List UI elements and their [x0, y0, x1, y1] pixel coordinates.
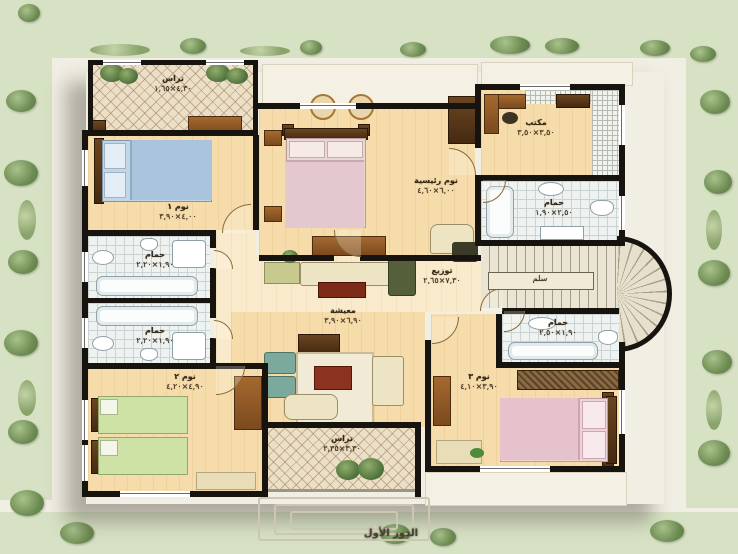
tree-icon	[698, 440, 730, 466]
sink	[92, 336, 114, 351]
room-dims: ١,٩٠×٢,٢٠	[118, 260, 192, 270]
window	[82, 150, 88, 186]
room-label-bedroom3: نوم ٣ ٣,٩٠×٤,١٠	[442, 372, 516, 393]
office-terrace-tile	[592, 90, 619, 175]
room-name: حمام	[518, 198, 590, 208]
wall-segment	[262, 422, 421, 428]
toilet	[598, 330, 618, 345]
coffee-table	[318, 282, 366, 298]
plant-icon	[226, 68, 248, 84]
tree-icon	[18, 4, 40, 22]
tv-cabinet	[298, 334, 340, 354]
window	[619, 390, 625, 434]
tree-icon	[4, 330, 38, 356]
wall-segment	[475, 240, 625, 246]
vanity	[540, 226, 584, 240]
room-label-master: نوم رئيسية ٦,٠٠×٤,٦٠	[392, 176, 480, 197]
floor-caption: الدور الأول	[336, 528, 446, 539]
wall-segment	[210, 338, 216, 363]
room-name: مكتب	[498, 118, 574, 128]
window	[520, 84, 570, 90]
bed-blanket	[286, 160, 364, 228]
sofa	[372, 356, 404, 406]
room-dims: ٧,٣٠×٢,٦٥	[406, 276, 478, 286]
wall-segment	[496, 362, 625, 368]
tree-icon	[8, 250, 38, 274]
wall-segment	[210, 268, 216, 318]
hedge-icon	[706, 210, 722, 250]
nightstand	[264, 130, 282, 146]
sink	[92, 250, 114, 265]
tree-icon	[10, 490, 44, 516]
tree-icon	[400, 42, 426, 57]
tree-icon	[702, 350, 732, 374]
roof-band	[425, 472, 627, 506]
room-label-bath-left2: حمام ١,٩٠×٢,٢٠	[118, 326, 192, 347]
room-name: تراس	[302, 434, 382, 444]
wardrobe	[517, 370, 619, 390]
tree-icon	[545, 38, 579, 54]
room-name: توزيع	[406, 266, 478, 276]
room-label-stair: سلم	[512, 274, 568, 284]
window	[103, 60, 141, 65]
window	[120, 491, 190, 497]
nightstand	[264, 206, 282, 222]
room-dims: ١,٩٠×٢,٥٠	[518, 328, 598, 338]
room-name: حمام	[118, 250, 192, 260]
room-name: حمام	[518, 318, 598, 328]
pillow	[104, 172, 126, 198]
room-label-bath-right: حمام ١,٩٠×٢,٥٠	[518, 318, 598, 339]
window	[206, 60, 244, 65]
plant-icon	[336, 460, 360, 480]
pillow	[100, 440, 118, 456]
wall-segment	[253, 135, 259, 230]
window	[619, 196, 625, 230]
room-name: نوم رئيسية	[392, 176, 480, 186]
wall-segment	[88, 60, 93, 135]
armchair	[264, 352, 296, 374]
tree-icon	[704, 170, 732, 194]
room-label-bedroom1: نوم ١ ٤,٠٠×٣,٩٠	[128, 202, 228, 223]
window	[82, 400, 88, 440]
wall-segment	[259, 255, 334, 261]
coffee-table	[314, 366, 352, 390]
room-label-hall: توزيع ٧,٣٠×٢,٦٥	[406, 266, 478, 287]
room-dims: ٦,٠٠×٤,٦٠	[392, 186, 480, 196]
sink	[538, 182, 564, 196]
room-dims: ٣,٣٠×٢,٣٥	[302, 444, 382, 454]
room-label-terrace-top: تراس ٤,٣٠×١,٦٥	[120, 74, 226, 95]
hedge-icon	[18, 380, 36, 416]
pillow	[582, 401, 606, 429]
tree-icon	[650, 520, 684, 542]
window	[82, 445, 88, 481]
window	[300, 103, 356, 109]
floor-plan-canvas: تراس ٤,٣٠×١,٦٥ نوم ١ ٤,٠٠×٣,٩٠ نوم رئيسي…	[0, 0, 738, 554]
room-dims: ٤,٩٠×٤,٢٠	[140, 382, 230, 392]
room-dims: ٤,٣٠×١,٦٥	[120, 84, 226, 94]
pillow	[100, 399, 118, 415]
toilet	[140, 348, 158, 361]
wall-segment	[425, 340, 431, 466]
wall-segment	[253, 103, 481, 109]
toilet	[590, 200, 614, 216]
hedge-icon	[240, 46, 290, 56]
pillow	[582, 431, 606, 459]
tree-icon	[698, 260, 730, 286]
tree-icon	[180, 38, 206, 54]
room-dims: ٣,٥٠×٣,٥٠	[498, 128, 574, 138]
room-name: حمام	[118, 326, 192, 336]
tree-icon	[60, 522, 94, 544]
window	[619, 105, 625, 145]
bed-blanket	[500, 398, 580, 460]
room-label-office: مكتب ٣,٥٠×٣,٥٠	[498, 118, 574, 139]
tree-icon	[640, 40, 670, 56]
room-name: معيشة	[298, 306, 388, 316]
bed-blanket	[130, 140, 212, 200]
tree-icon	[690, 46, 716, 62]
pillow	[327, 141, 363, 158]
tree-icon	[8, 420, 38, 444]
room-name: نوم ٣	[442, 372, 516, 382]
room-label-bath-left1: حمام ١,٩٠×٢,٢٠	[118, 250, 192, 271]
pillow	[289, 141, 325, 158]
room-name: نوم ٢	[140, 372, 230, 382]
room-name: سلم	[512, 274, 568, 284]
wall-segment	[496, 314, 502, 362]
sofa	[284, 394, 338, 420]
window	[82, 318, 88, 348]
tree-icon	[6, 90, 36, 112]
desk	[196, 472, 256, 490]
tree-icon	[490, 36, 530, 54]
room-dims: ٣,٩٠×٤,١٠	[442, 382, 516, 392]
hedge-icon	[18, 200, 36, 240]
room-label-terrace-bottom: تراس ٣,٣٠×٢,٣٥	[302, 434, 382, 455]
room-label-bath-top: حمام ٢,٥٠×١,٩٠	[518, 198, 590, 219]
pillow	[104, 143, 126, 169]
bathtub	[508, 342, 598, 360]
roof-band	[481, 62, 633, 86]
tree-icon	[4, 160, 38, 186]
wall-segment	[262, 369, 268, 497]
window	[480, 466, 550, 472]
room-name: تراس	[120, 74, 226, 84]
tree-icon	[300, 40, 322, 55]
wall-segment	[253, 60, 258, 135]
wall-segment	[475, 84, 481, 148]
chair	[470, 448, 484, 458]
wall-segment	[88, 298, 216, 303]
bathtub	[96, 276, 198, 296]
room-label-living: معيشة ٦,٩٠×٣,٩٠	[298, 306, 388, 327]
bookshelf	[556, 94, 590, 108]
room-dims: ١,٩٠×٢,٢٠	[118, 336, 192, 346]
room-dims: ٦,٩٠×٣,٩٠	[298, 316, 388, 326]
side-table	[264, 262, 300, 284]
wall-segment	[210, 236, 216, 248]
wall-segment	[88, 130, 258, 136]
plant-icon	[358, 458, 384, 480]
window	[82, 252, 88, 282]
hedge-icon	[706, 390, 722, 430]
wall-segment	[415, 422, 421, 497]
wall-segment	[82, 230, 216, 236]
room-dims: ٢,٥٠×١,٩٠	[518, 208, 590, 218]
wall-segment	[360, 255, 481, 261]
terrace-rail	[268, 489, 415, 492]
tree-icon	[700, 90, 730, 114]
bathtub	[96, 306, 198, 326]
room-label-bedroom2: نوم ٢ ٤,٩٠×٤,٢٠	[140, 372, 230, 393]
desk-return	[484, 94, 499, 134]
room-dims: ٤,٠٠×٣,٩٠	[128, 212, 228, 222]
room-name: نوم ١	[128, 202, 228, 212]
hedge-icon	[90, 44, 150, 56]
